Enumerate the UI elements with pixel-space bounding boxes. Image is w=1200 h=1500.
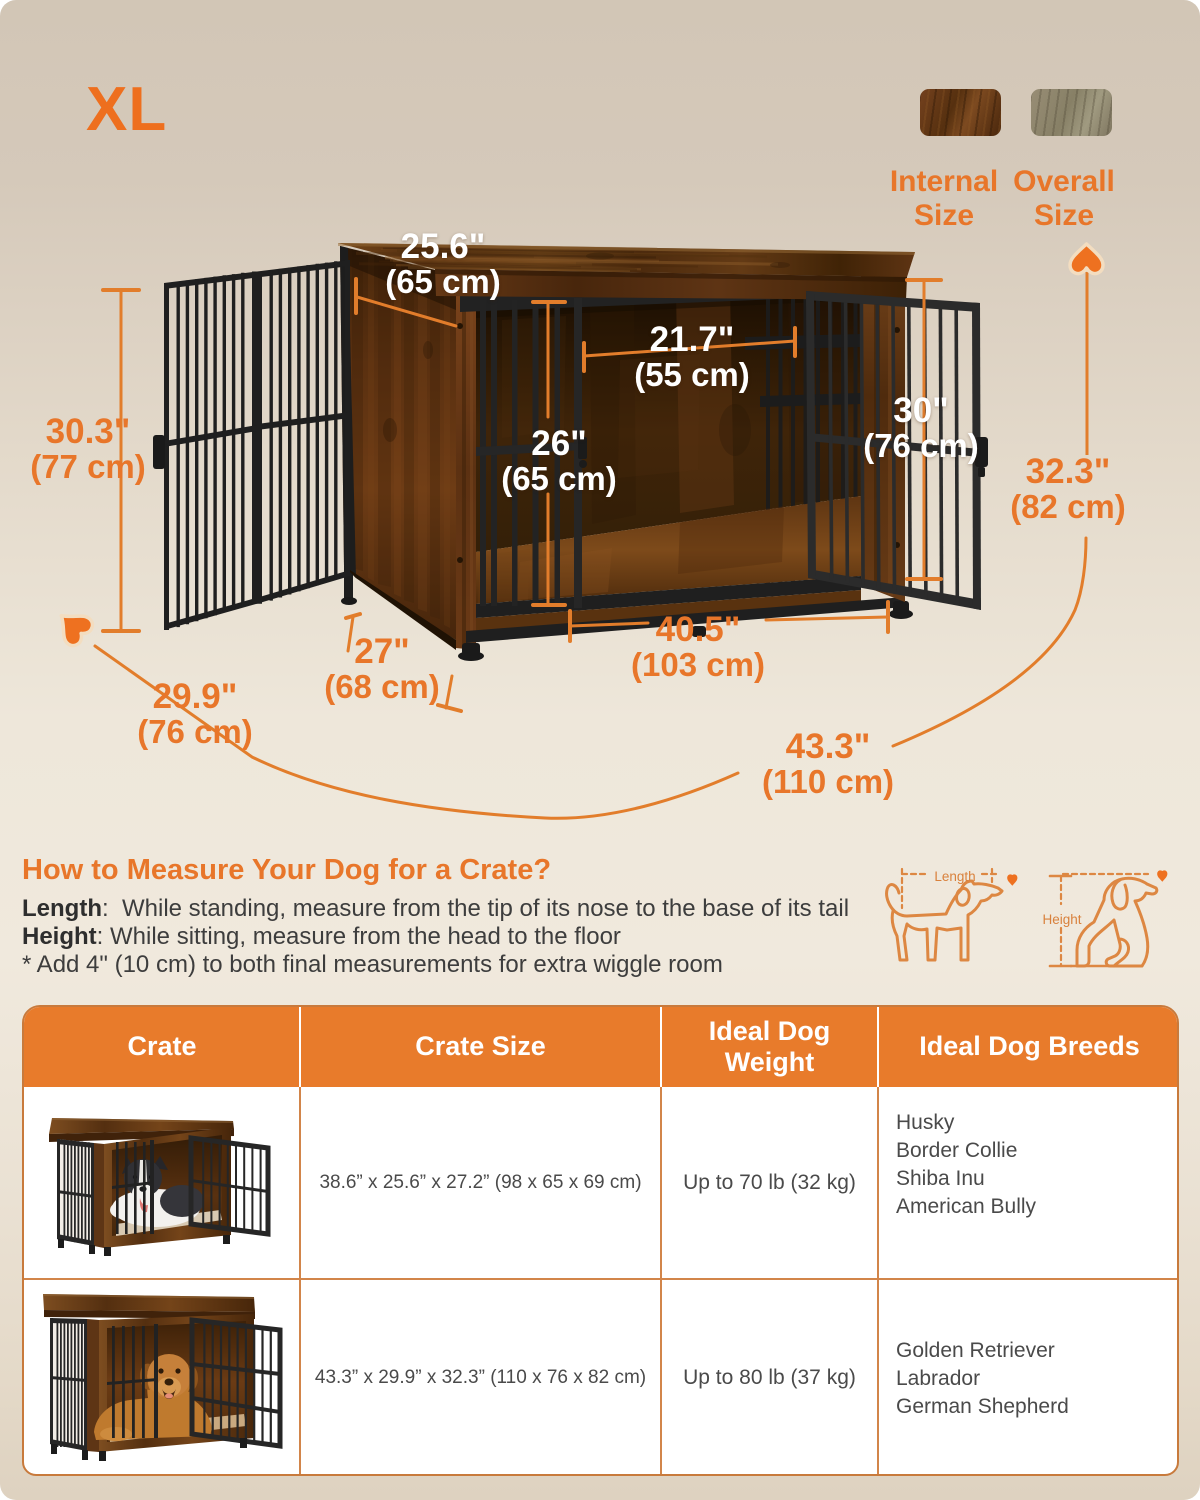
svg-text:Height: Height [1042, 912, 1081, 927]
svg-text:Length: Length [934, 869, 975, 884]
